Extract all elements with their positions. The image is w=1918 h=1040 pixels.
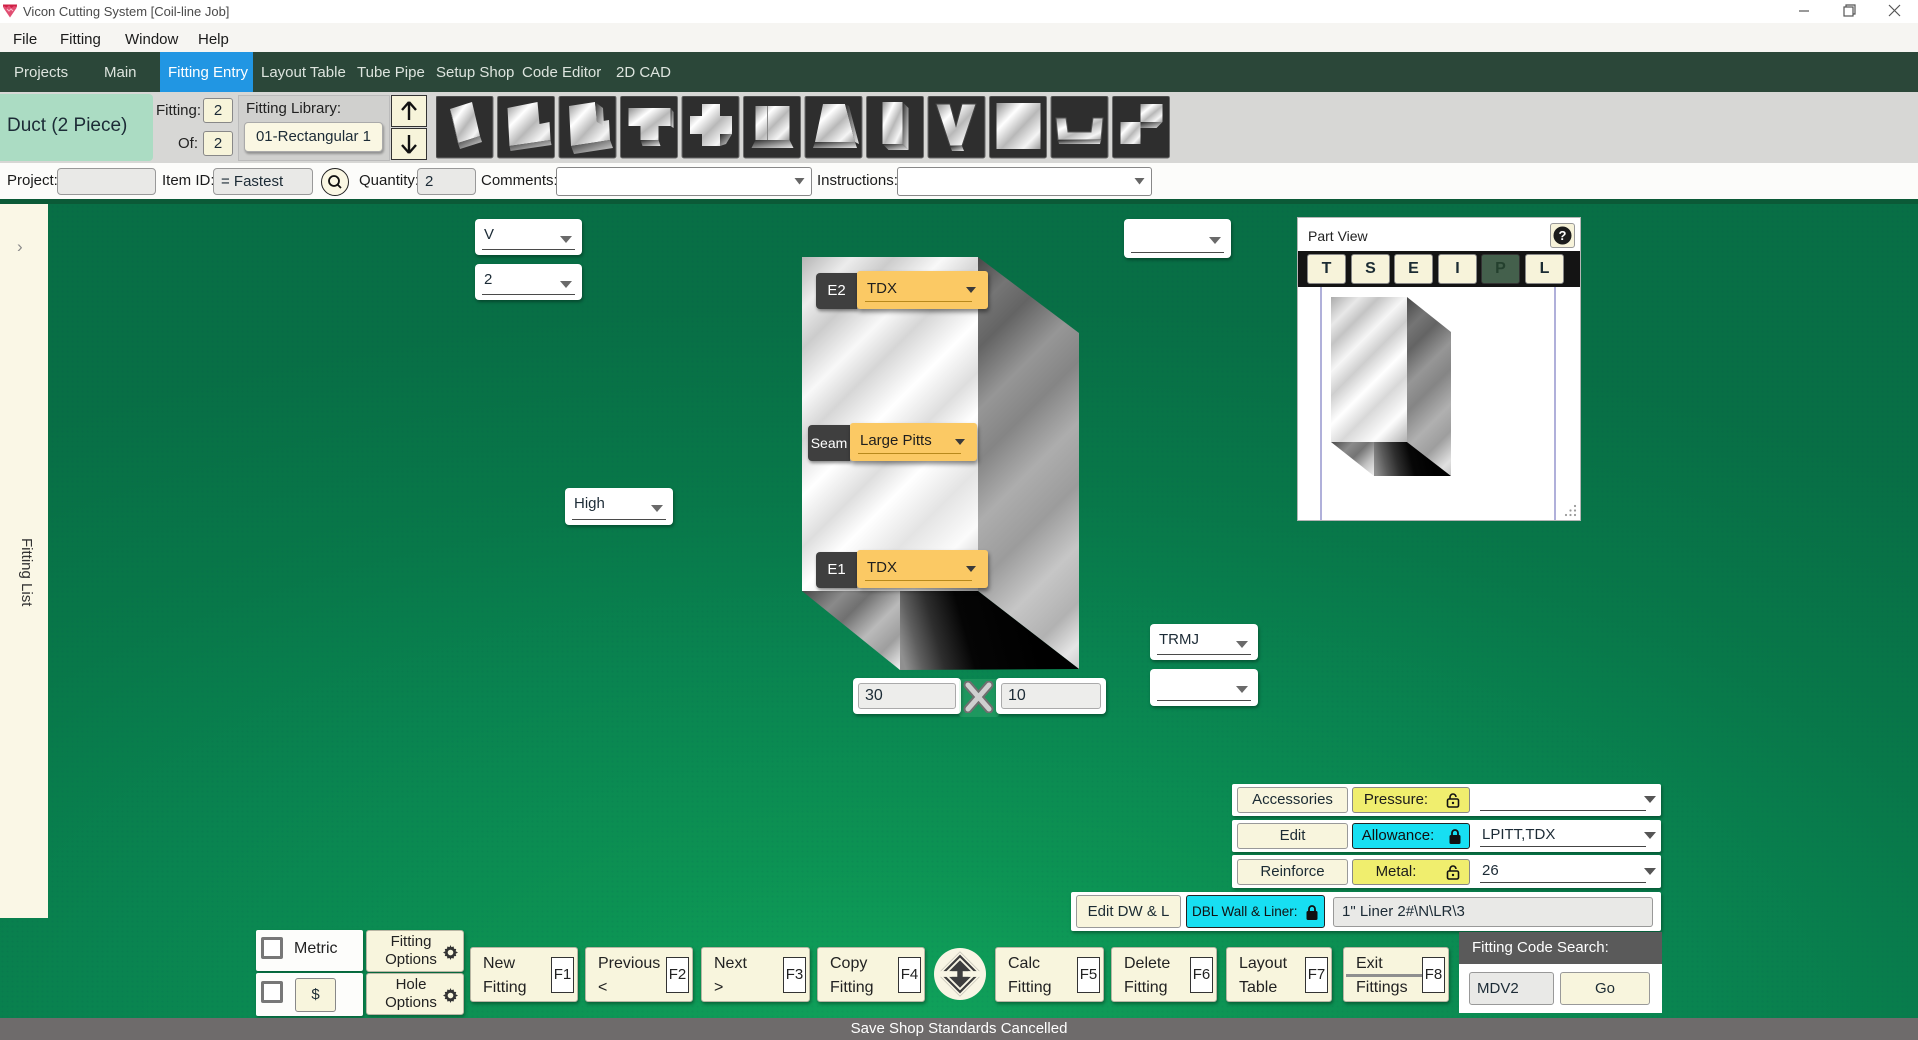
svg-text:?: ?	[1559, 228, 1567, 243]
